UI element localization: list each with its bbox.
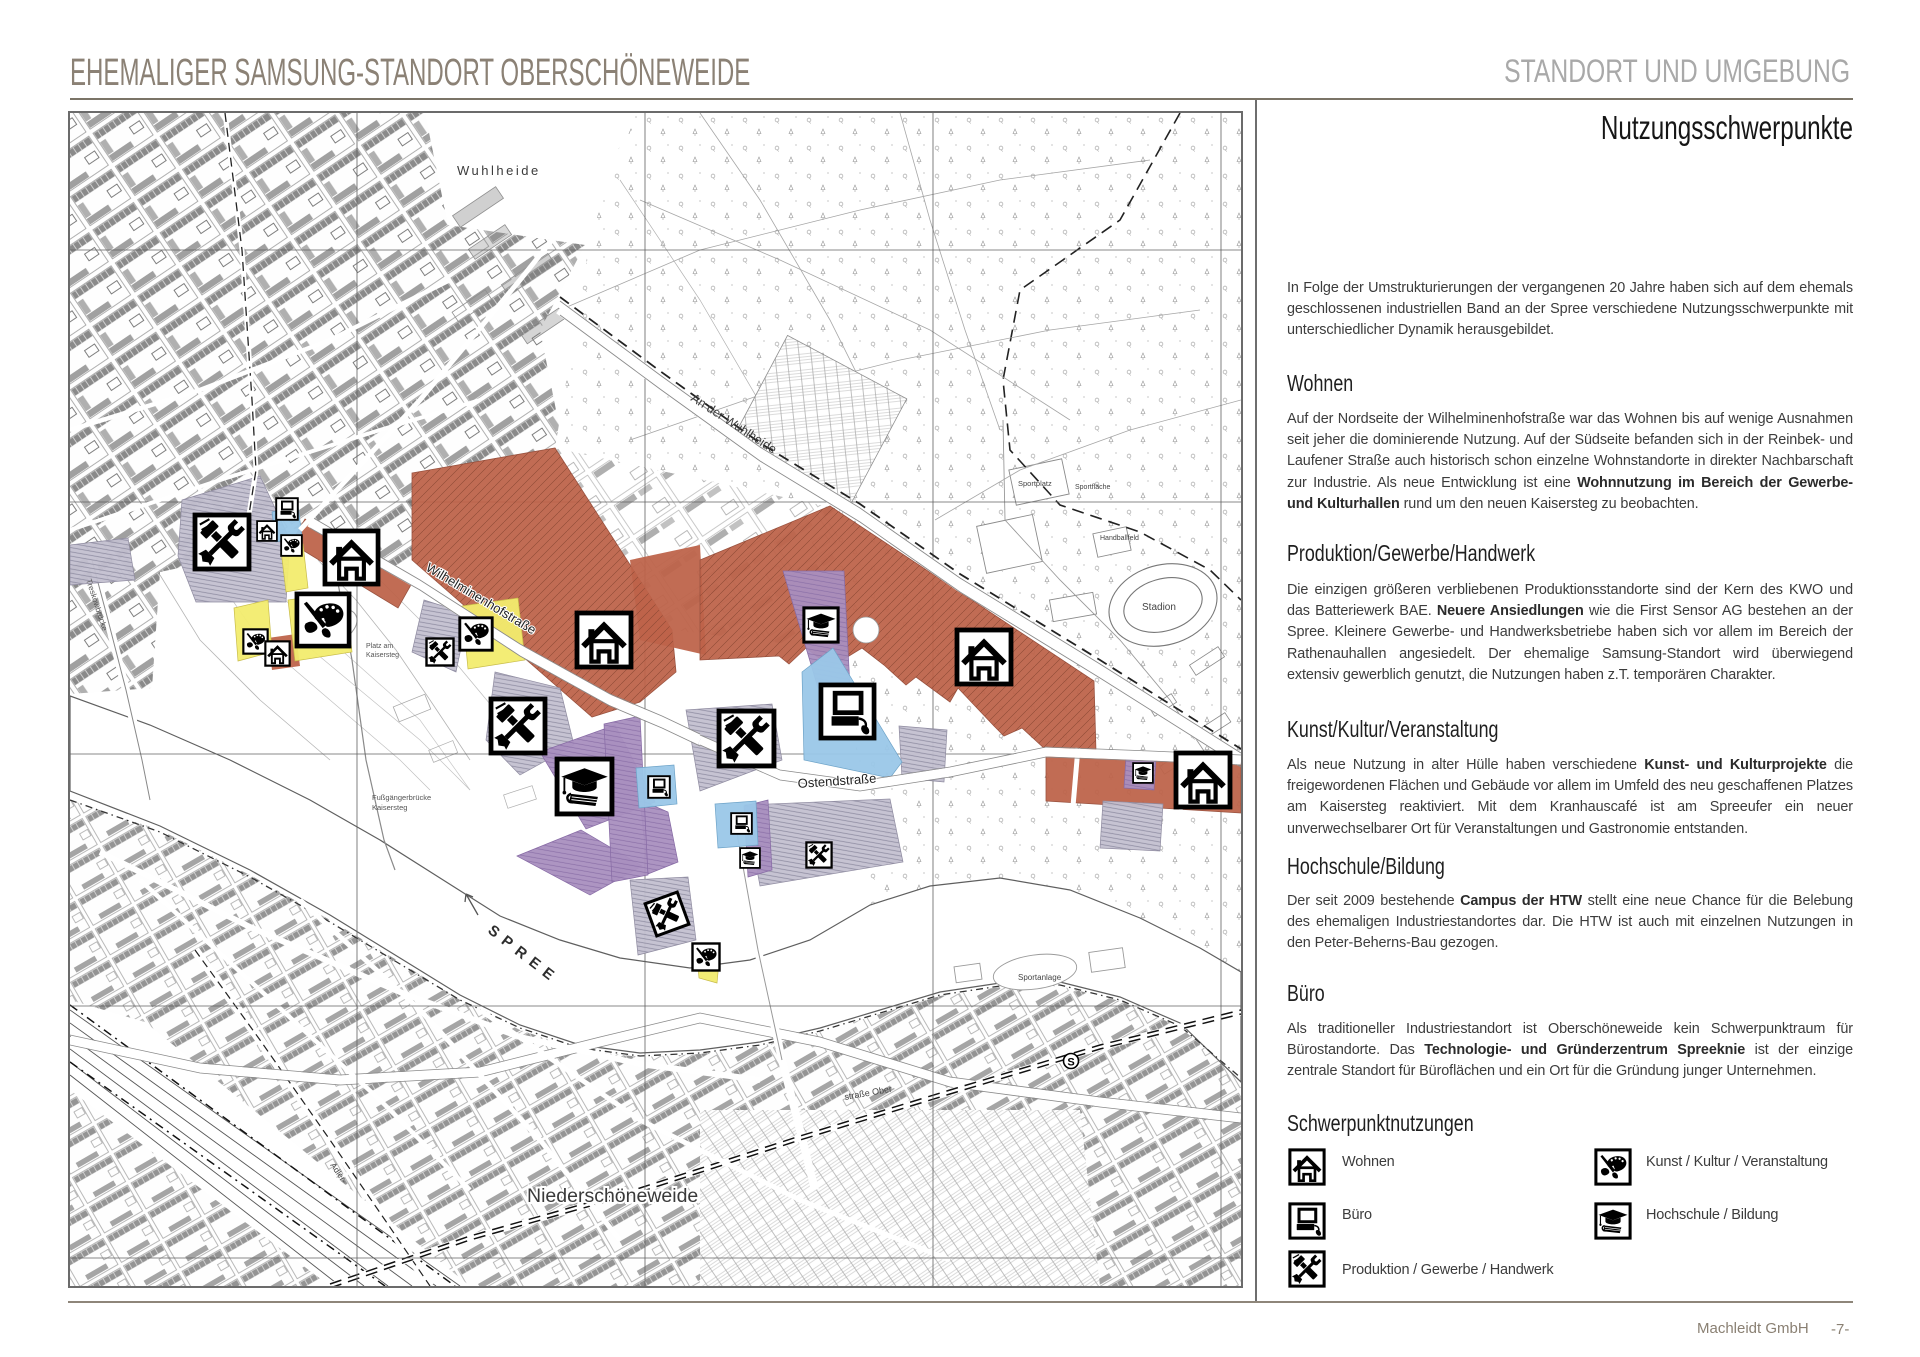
svg-text:Sportanlage: Sportanlage [1018, 973, 1062, 982]
svg-text:Kaisersteg: Kaisersteg [366, 652, 399, 659]
svg-text:Niederschöneweide: Niederschöneweide [527, 1185, 698, 1207]
svg-text:Sportplatz: Sportplatz [1018, 479, 1052, 488]
svg-text:Wuhlheide: Wuhlheide [457, 163, 541, 178]
svg-text:Platz am: Platz am [366, 643, 393, 650]
svg-text:Handballfeld: Handballfeld [1100, 535, 1139, 542]
svg-text:Fußgängerbrücke: Fußgängerbrücke [372, 793, 431, 802]
svg-text:Kaisersteg: Kaisersteg [372, 803, 407, 812]
svg-text:Sportfläche: Sportfläche [1075, 484, 1111, 491]
svg-text:S: S [1067, 1057, 1074, 1069]
svg-text:Stadion: Stadion [1142, 602, 1176, 613]
